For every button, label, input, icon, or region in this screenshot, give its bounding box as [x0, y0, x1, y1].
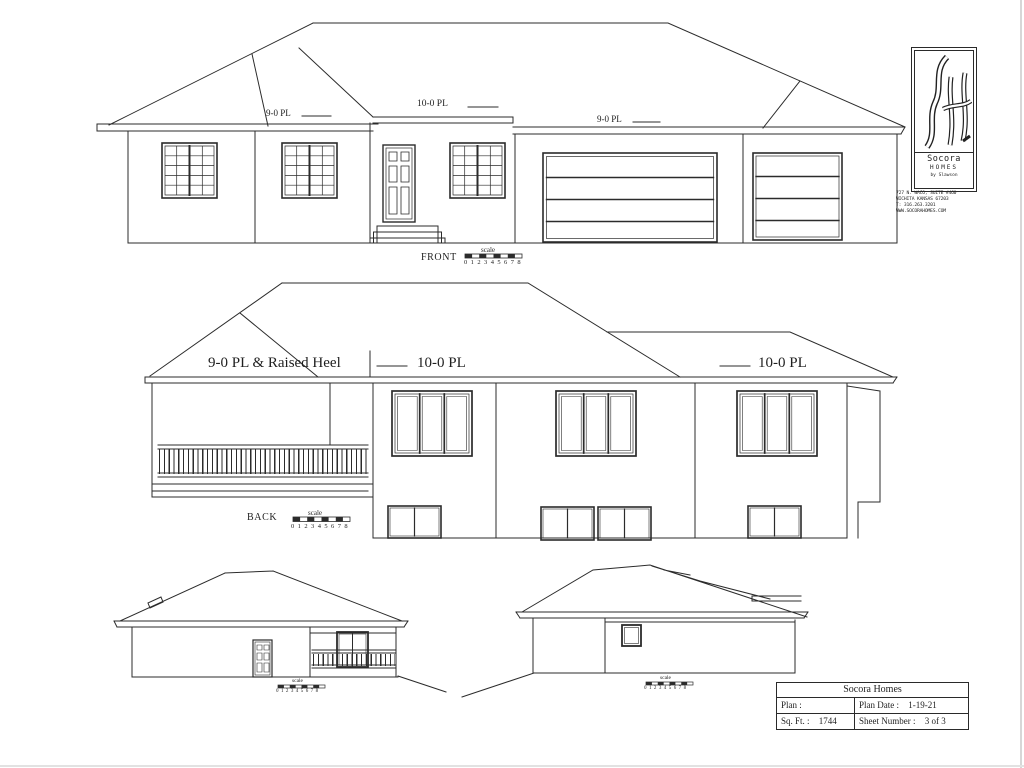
left-side-scale-label: scale	[292, 678, 303, 684]
back-plate-left-label: 9-0 PL & Raised Heel	[208, 355, 341, 372]
sheet-number-cell: Sheet Number : 3 of 3	[855, 714, 968, 729]
sheet-number-value: 3 of 3	[925, 716, 946, 726]
front-scale-numbers: 0 1 2 3 4 5 6 7 8	[464, 259, 522, 266]
title-block-row-sqft: Sq. Ft. : 1744 Sheet Number : 3 of 3	[777, 714, 968, 729]
logo-company-type: HOMES	[915, 164, 973, 171]
front-fascia-center	[373, 117, 513, 123]
front-steps	[370, 226, 445, 243]
right-side-scale-numbers: 0 1 2 3 4 5 6 7 8	[644, 686, 687, 691]
front-fascia-left	[97, 124, 378, 131]
back-scale-bar	[293, 517, 350, 522]
left-side-elevation-drawing	[114, 571, 446, 692]
back-fascia	[145, 377, 897, 383]
title-block: Socora Homes Plan : Plan Date : 1-19-21 …	[776, 682, 969, 730]
back-window-triple-2	[556, 391, 636, 456]
left-side-door	[253, 640, 272, 677]
back-scale-label: scale	[308, 509, 322, 517]
front-fascia-garage	[513, 127, 905, 134]
address-line-4: WWW.SOCORAHOMES.COM	[896, 209, 1006, 215]
front-plate-left-label: 9-0 PL	[266, 108, 291, 118]
left-side-walls	[132, 627, 398, 677]
sh-monogram-icon	[915, 51, 972, 151]
back-basement-windows	[388, 506, 801, 540]
back-window-triple-1	[392, 391, 472, 456]
plan-date-label: Plan Date :	[859, 700, 899, 710]
left-side-porch-balusters	[313, 654, 395, 666]
title-block-company: Socora Homes	[777, 683, 968, 698]
back-view-title: BACK	[247, 512, 277, 523]
back-plate-right-label: 10-0 PL	[758, 355, 807, 372]
plan-date-cell: Plan Date : 1-19-21	[855, 698, 968, 713]
elevation-line-art	[0, 0, 1024, 768]
right-side-scale-label: scale	[660, 675, 671, 681]
back-right-return	[847, 386, 880, 538]
back-window-triple-3	[737, 391, 817, 456]
back-plate-center-label: 10-0 PL	[417, 355, 466, 372]
plan-date-value: 1-19-21	[908, 700, 937, 710]
sqft-label: Sq. Ft. :	[781, 716, 810, 726]
front-plate-center-label: 10-0 PL	[417, 99, 448, 109]
logo-inner-frame: Socora HOMES by Slawson	[914, 50, 974, 189]
front-plate-right-label: 9-0 PL	[597, 114, 622, 124]
page-edge-bottom	[0, 765, 1024, 767]
left-side-roof	[120, 571, 402, 621]
right-side-elevation-drawing	[462, 565, 808, 697]
back-porch-rails	[152, 383, 373, 491]
company-address: 727 N. WACO, SUITE #460 WICHITA KANSAS 6…	[896, 191, 1006, 215]
front-window-1	[162, 143, 217, 198]
back-elevation-drawing	[145, 283, 897, 540]
title-block-row-plan: Plan : Plan Date : 1-19-21	[777, 698, 968, 714]
blueprint-page: 9-0 PL 10-0 PL 9-0 PL FRONT scale 0 1 2 …	[0, 0, 1024, 768]
plan-label: Plan :	[781, 700, 802, 710]
back-scale-numbers: 0 1 2 3 4 5 6 7 8	[291, 523, 349, 530]
plan-cell: Plan :	[777, 698, 855, 713]
right-side-grade-line	[462, 673, 534, 697]
garage-door-double	[543, 153, 717, 242]
front-scale-bar	[465, 254, 522, 258]
front-walls	[128, 123, 897, 243]
sqft-cell: Sq. Ft. : 1744	[777, 714, 855, 729]
right-side-fascia	[516, 612, 808, 618]
front-door	[383, 145, 415, 222]
back-porch-balusters	[159, 449, 367, 474]
left-side-scale-numbers: 0 1 2 3 4 5 6 7 8	[276, 689, 319, 694]
right-side-walls	[533, 618, 795, 673]
front-view-title: FRONT	[421, 252, 457, 263]
front-window-2	[282, 143, 337, 198]
page-edge-right	[1020, 0, 1022, 768]
right-side-roof	[522, 565, 807, 617]
left-side-fascia	[114, 621, 408, 627]
left-side-grade-line	[398, 676, 446, 692]
front-roof	[109, 23, 905, 128]
front-scale-label: scale	[481, 246, 495, 254]
front-elevation-drawing	[97, 23, 905, 258]
logo-byline: by Slawson	[915, 173, 973, 178]
right-side-window	[622, 625, 641, 646]
front-window-3	[450, 143, 505, 198]
garage-door-single	[753, 153, 842, 240]
sheet-number-label: Sheet Number :	[859, 716, 916, 726]
company-logo-block: Socora HOMES by Slawson	[911, 47, 977, 192]
sqft-value: 1744	[819, 716, 837, 726]
logo-company-name: Socora	[915, 152, 973, 164]
